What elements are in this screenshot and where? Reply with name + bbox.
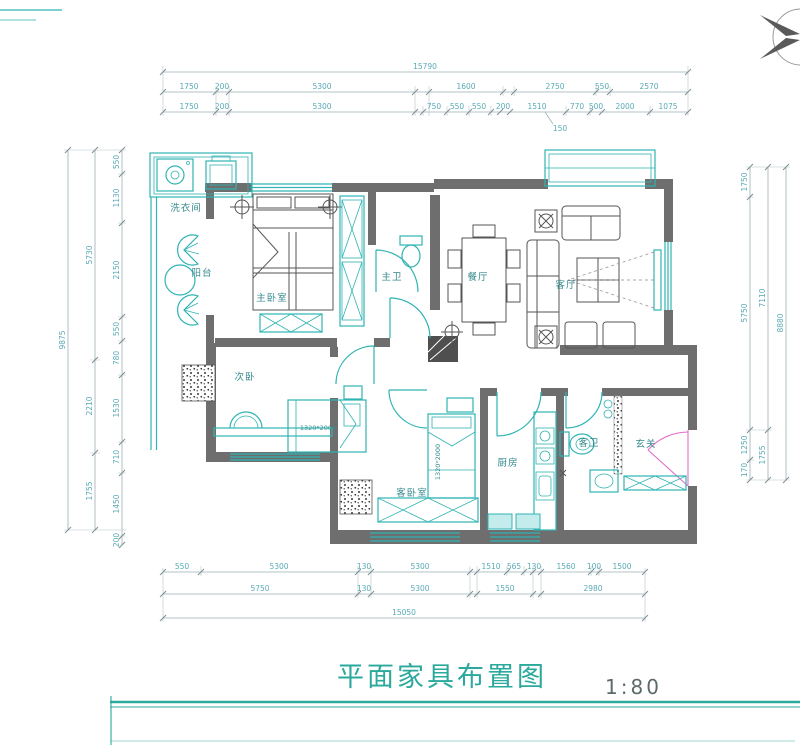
dim: 130 xyxy=(527,562,542,571)
room-label-second-bedroom: 次卧 xyxy=(234,371,255,383)
dim: 710 xyxy=(112,450,121,465)
room-balcony: 阳台 xyxy=(165,235,213,325)
dim: 1550 xyxy=(495,584,514,593)
ceiling-light-icon xyxy=(230,195,254,219)
bed-bench-icon xyxy=(260,314,322,332)
patio-chair-icon xyxy=(178,295,199,325)
shower-valve-icon xyxy=(604,400,612,408)
kitchen-unit-icon xyxy=(488,514,512,529)
armchair-icon xyxy=(565,322,597,348)
room-label-entry: 玄关 xyxy=(635,438,656,450)
room-living: 客厅 xyxy=(527,206,661,348)
dim: 1750 xyxy=(179,102,198,111)
dim: 750 xyxy=(427,102,442,111)
dim: 1510 xyxy=(481,562,500,571)
dim: 2750 xyxy=(545,82,564,91)
sheet-corner-marks xyxy=(0,10,62,20)
drawing-title: 平面家具布置图 xyxy=(337,662,547,693)
dim: 5300 xyxy=(410,584,429,593)
dim: 130 xyxy=(357,562,372,571)
floor-plan-sheet: 15790 1750 200 5300 1600 2750 550 2570 1… xyxy=(0,0,800,749)
dim: 2570 xyxy=(639,82,658,91)
drawing-scale: 1:80 xyxy=(605,675,662,699)
dim: 550 xyxy=(450,102,465,111)
dim: 5300 xyxy=(312,82,331,91)
dim: 1750 xyxy=(179,82,198,91)
dim: 1075 xyxy=(658,102,677,111)
wardrobe-icon xyxy=(340,196,364,326)
dim: 550 xyxy=(175,562,190,571)
room-master-bedroom: 主卧室 xyxy=(230,194,430,338)
bay-window xyxy=(545,150,655,186)
room-label-dining: 餐厅 xyxy=(467,271,488,283)
shower-valve-icon xyxy=(604,410,612,418)
leader-line xyxy=(545,112,553,124)
walls xyxy=(205,179,697,544)
room-label-guest-bedroom: 客卧室 xyxy=(396,487,428,499)
toilet-icon xyxy=(400,236,422,267)
room-label-master-bedroom: 主卧室 xyxy=(256,292,288,304)
dim: 200 xyxy=(215,82,230,91)
dimensions-right: 8880 7110 1755 1750 5750 1250 170 xyxy=(740,172,785,477)
dim: 5750 xyxy=(740,303,749,322)
dim: 1600 xyxy=(456,82,475,91)
dim-bottom-total: 15050 xyxy=(392,608,416,617)
room-entry: 玄关 xyxy=(624,430,688,490)
dim: 130 xyxy=(357,584,372,593)
dim: 550 xyxy=(112,155,121,170)
room-kitchen: 厨房 xyxy=(488,392,556,530)
dim: 100 xyxy=(587,562,602,571)
armchair-icon xyxy=(603,322,635,348)
dim: 170 xyxy=(740,463,749,478)
dim-top-total: 15790 xyxy=(413,62,437,71)
dim: 200 xyxy=(496,102,511,111)
room-master-bath: 主卫 xyxy=(376,236,422,292)
dim: 565 xyxy=(507,562,522,571)
room-label-kitchen: 厨房 xyxy=(497,457,518,469)
dim: 5300 xyxy=(269,562,288,571)
dim-right-total: 8880 xyxy=(776,313,785,332)
room-label-balcony: 阳台 xyxy=(191,267,212,279)
dim: 2150 xyxy=(112,260,121,279)
patio-chair-icon xyxy=(178,235,199,265)
nightstand-icon xyxy=(447,398,473,412)
dim: 550 xyxy=(595,82,610,91)
desk-cabinet-icon xyxy=(378,498,478,522)
dim: 1130 xyxy=(112,188,121,207)
dim: 5300 xyxy=(312,102,331,111)
door-arc xyxy=(336,346,374,384)
side-table-lamp-icon xyxy=(535,210,557,232)
bed-size-label: 1320*2000 xyxy=(434,444,442,480)
nightstand-icon xyxy=(344,386,362,399)
door-arc xyxy=(390,298,430,338)
dim: 5730 xyxy=(85,245,94,264)
room-dining: 餐厅 xyxy=(441,225,520,343)
dim: 200 xyxy=(112,533,121,548)
room-label-guest-bath: 客卫 xyxy=(578,437,599,449)
dim-leader: 150 xyxy=(553,124,568,133)
dimensions-bottom: 550 5300 130 5300 1510 565 130 1560 100 … xyxy=(175,562,632,617)
planter-hatch xyxy=(182,365,215,401)
dim: 1755 xyxy=(758,445,767,464)
dim: 7110 xyxy=(758,288,767,307)
shoe-cabinet-icon xyxy=(624,476,686,490)
dim: 1755 xyxy=(85,481,94,500)
washing-machine-icon xyxy=(157,159,193,191)
dim: 2000 xyxy=(615,102,634,111)
room-guest-bedroom: 1320*2000 客卧室 xyxy=(340,390,478,522)
floor-plan-canvas: 15790 1750 200 5300 1600 2750 550 2570 1… xyxy=(0,0,800,749)
column xyxy=(428,336,458,362)
room-guest-bath: 客卫 xyxy=(560,392,618,492)
room-label-living: 客厅 xyxy=(555,279,576,291)
dim: 2980 xyxy=(583,584,602,593)
sofa-long-icon xyxy=(527,240,559,348)
title-block: 平面家具布置图 1:80 xyxy=(110,662,800,745)
ceiling-light-icon xyxy=(318,195,342,219)
planter-hatch xyxy=(340,480,372,514)
dimensions-top: 15790 1750 200 5300 1600 2750 550 2570 1… xyxy=(179,62,677,133)
door-arc xyxy=(389,390,427,428)
sofa-short-icon xyxy=(562,206,620,240)
dim: 500 xyxy=(589,102,604,111)
dim: 1510 xyxy=(527,102,546,111)
dim: 5300 xyxy=(410,562,429,571)
dimensions-left: 9875 5730 2210 1755 550 1130 2150 550 78… xyxy=(58,155,121,548)
door-arc xyxy=(376,250,418,292)
kitchen-counter-icon xyxy=(534,412,556,530)
dim: 1750 xyxy=(740,172,749,191)
room-label-laundry: 洗衣间 xyxy=(170,202,202,214)
dim-left-total: 9875 xyxy=(58,330,67,349)
dim: 1530 xyxy=(112,398,121,417)
dim: 5750 xyxy=(250,584,269,593)
bed-icon: 1320*2000 xyxy=(428,414,475,498)
dim: 1560 xyxy=(556,562,575,571)
bed-icon: 1320*2000 xyxy=(288,400,366,452)
dim: 2210 xyxy=(85,396,94,415)
dim: 200 xyxy=(215,102,230,111)
dim: 550 xyxy=(472,102,487,111)
dim: 780 xyxy=(112,351,121,366)
north-compass-icon xyxy=(760,9,800,65)
dim: 1250 xyxy=(740,435,749,454)
bed-size-label: 1320*2000 xyxy=(300,424,336,432)
door-arc xyxy=(566,392,602,428)
room-label-master-bath: 主卫 xyxy=(381,271,402,283)
dim: 550 xyxy=(112,322,121,337)
side-table-lamp-icon xyxy=(535,326,557,348)
dim: 770 xyxy=(570,102,585,111)
shaft-hatch xyxy=(614,396,622,474)
dim: 1450 xyxy=(112,494,121,513)
kitchen-unit-icon xyxy=(516,514,540,529)
dim: 1500 xyxy=(612,562,631,571)
